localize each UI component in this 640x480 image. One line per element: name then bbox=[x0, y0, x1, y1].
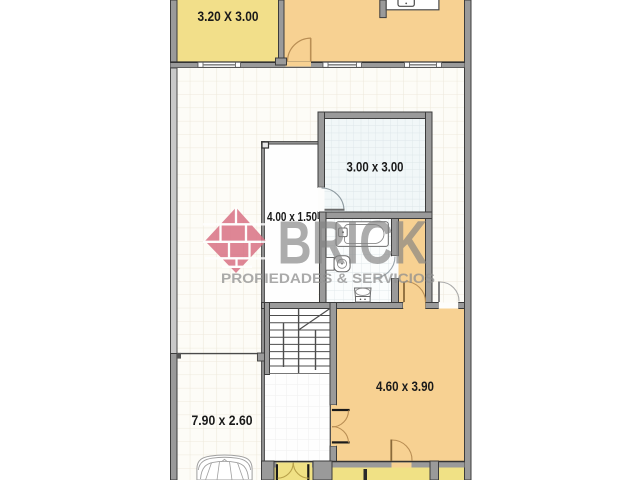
svg-text:PROPIEDADES & SERVICIOS: PROPIEDADES & SERVICIOS bbox=[221, 271, 435, 286]
svg-text:3.20 X 3.00: 3.20 X 3.00 bbox=[198, 8, 259, 24]
svg-text:7.90 x 2.60: 7.90 x 2.60 bbox=[192, 412, 253, 428]
svg-text:3.00 x 3.00: 3.00 x 3.00 bbox=[347, 159, 404, 175]
svg-text:BRICK: BRICK bbox=[278, 209, 428, 277]
svg-text:4.60 x 3.90: 4.60 x 3.90 bbox=[376, 378, 434, 394]
